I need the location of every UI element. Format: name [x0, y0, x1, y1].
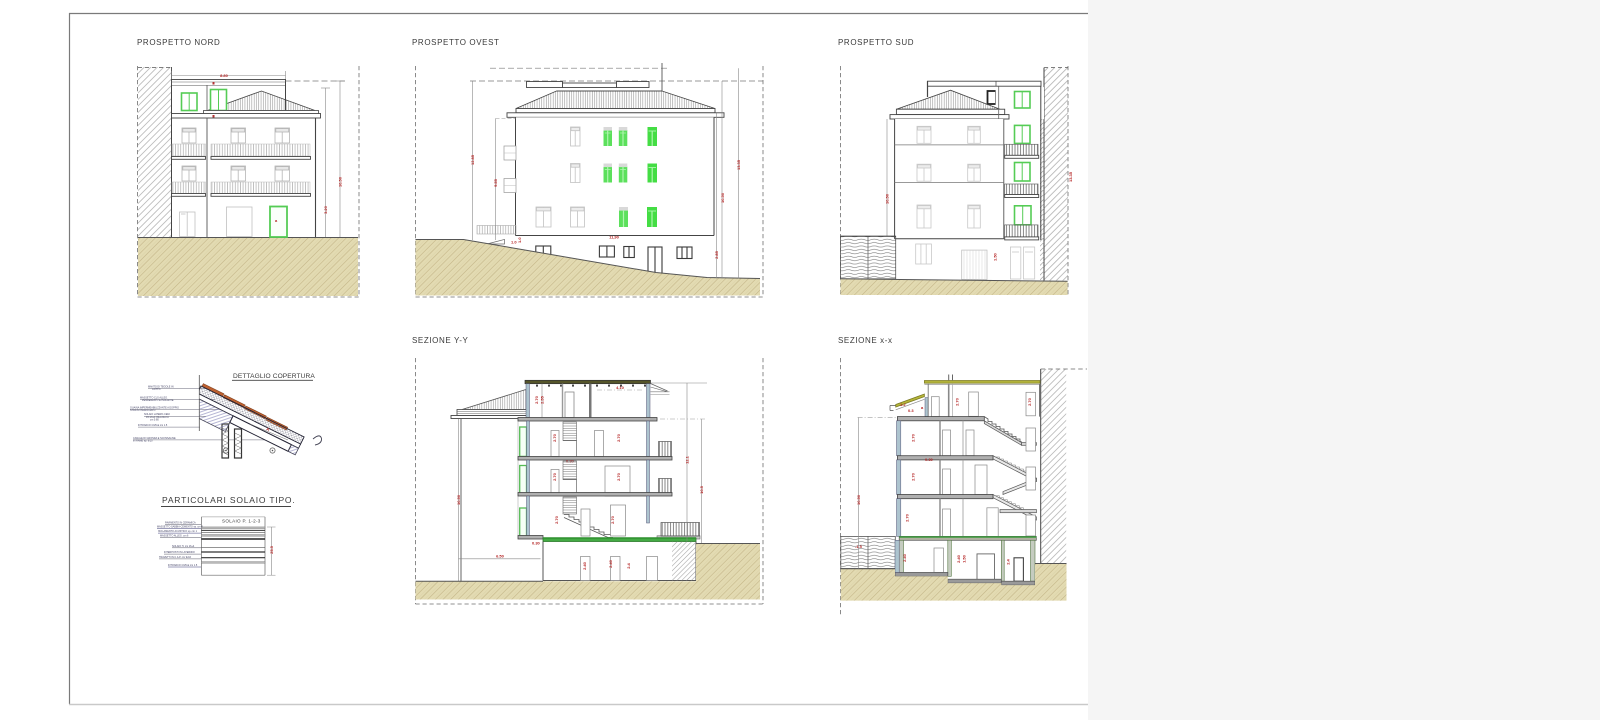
svg-text:2.70: 2.70 — [955, 397, 960, 406]
svg-text:2.70: 2.70 — [911, 472, 916, 481]
svg-text:INTONACO CIVILE cm 1.5: INTONACO CIVILE cm 1.5 — [138, 424, 168, 427]
svg-text:SEZIONE x-x: SEZIONE x-x — [838, 336, 893, 345]
svg-text:2.70: 2.70 — [610, 515, 615, 524]
svg-text:2.70: 2.70 — [616, 433, 621, 442]
svg-text:0.3: 0.3 — [908, 408, 914, 413]
svg-text:8.80: 8.80 — [220, 73, 229, 78]
svg-text:2.85: 2.85 — [714, 250, 719, 259]
svg-text:13.35: 13.35 — [736, 159, 741, 170]
svg-text:2.70: 2.70 — [1027, 397, 1032, 406]
svg-text:13.35: 13.35 — [1068, 171, 1073, 182]
svg-text:1.2: 1.2 — [900, 402, 906, 407]
svg-text:INTONACO CIVILE cm 1.5: INTONACO CIVILE cm 1.5 — [168, 564, 198, 567]
svg-text:2.40: 2.40 — [582, 561, 587, 570]
svg-text:PAVIMENTO IN CERAMICA: PAVIMENTO IN CERAMICA — [165, 522, 196, 525]
svg-text:ISOLAMENTO ACUSTICO sp. cm 1: ISOLAMENTO ACUSTICO sp. cm 1 — [158, 530, 198, 533]
svg-text:2.70: 2.70 — [905, 513, 910, 522]
svg-text:9.55: 9.55 — [493, 178, 498, 187]
svg-text:2.40: 2.40 — [902, 553, 907, 562]
svg-text:MASSETTO ALLEG. cm 6: MASSETTO ALLEG. cm 6 — [160, 534, 189, 537]
svg-text:DETTAGLIO COPERTURA: DETTAGLIO COPERTURA — [233, 373, 315, 380]
svg-text:10.50: 10.50 — [856, 494, 861, 505]
svg-text:10.50: 10.50 — [885, 193, 890, 204]
svg-text:11,90: 11,90 — [609, 235, 620, 240]
svg-text:MASSETTO SABBIA-CEMENTO sp. cm: MASSETTO SABBIA-CEMENTO sp. cm 4 — [157, 526, 203, 529]
svg-text:10.50: 10.50 — [338, 176, 343, 187]
svg-text:2.70: 2.70 — [552, 433, 557, 442]
svg-text:cm 0.80: cm 0.80 — [150, 419, 159, 422]
svg-text:10.50: 10.50 — [456, 494, 461, 505]
svg-text:PROSPETTO NORD: PROSPETTO NORD — [137, 38, 220, 47]
svg-text:1.50: 1.50 — [993, 252, 998, 261]
svg-text:PARTICOLARI SOLAIO TIPO.: PARTICOLARI SOLAIO TIPO. — [162, 495, 296, 505]
svg-text:6.50: 6.50 — [496, 554, 505, 559]
svg-text:SEZIONE Y-Y: SEZIONE Y-Y — [412, 336, 468, 345]
svg-text:SOLAIO P. 1-2-3: SOLAIO P. 1-2-3 — [222, 519, 261, 524]
svg-text:PROSPETTO OVEST: PROSPETTO OVEST — [412, 38, 500, 47]
svg-text:0.30: 0.30 — [925, 457, 934, 462]
svg-text:10.50: 10.50 — [720, 192, 725, 203]
svg-text:PROSPETTO SUD: PROSPETTO SUD — [838, 38, 914, 47]
svg-text:2.55: 2.55 — [540, 395, 545, 404]
svg-text:12.1: 12.1 — [685, 455, 690, 464]
svg-text:INTERPOSTI IN LATERIZIO: INTERPOSTI IN LATERIZIO — [164, 551, 195, 554]
svg-text:3.20: 3.20 — [323, 205, 328, 214]
svg-text:2.70: 2.70 — [616, 472, 621, 481]
svg-text:2.4: 2.4 — [1006, 558, 1011, 564]
svg-text:25.5: 25.5 — [269, 545, 274, 554]
svg-text:2.4: 2.4 — [626, 562, 631, 568]
svg-text:12.85: 12.85 — [470, 154, 475, 165]
svg-text:2.70: 2.70 — [552, 472, 557, 481]
svg-text:SOLAIO H. cm 16+4: SOLAIO H. cm 16+4 — [172, 545, 195, 548]
svg-text:0.30: 0.30 — [532, 541, 541, 546]
svg-text:-1.5: -1.5 — [855, 544, 863, 549]
svg-text:1.50: 1.50 — [962, 554, 967, 563]
svg-text:4.10: 4.10 — [616, 385, 625, 390]
svg-text:2.40: 2.40 — [956, 554, 961, 563]
svg-text:2.70: 2.70 — [554, 515, 559, 524]
svg-text:1.0: 1.0 — [517, 237, 522, 243]
svg-text:2.70: 2.70 — [911, 433, 916, 442]
svg-text:TRAVETTI IN C.A.P. cm 9x16: TRAVETTI IN C.A.P. cm 9x16 — [159, 556, 192, 559]
svg-text:2.40: 2.40 — [608, 559, 613, 568]
svg-text:10.5: 10.5 — [699, 485, 704, 494]
svg-text:2.70: 2.70 — [534, 395, 539, 404]
